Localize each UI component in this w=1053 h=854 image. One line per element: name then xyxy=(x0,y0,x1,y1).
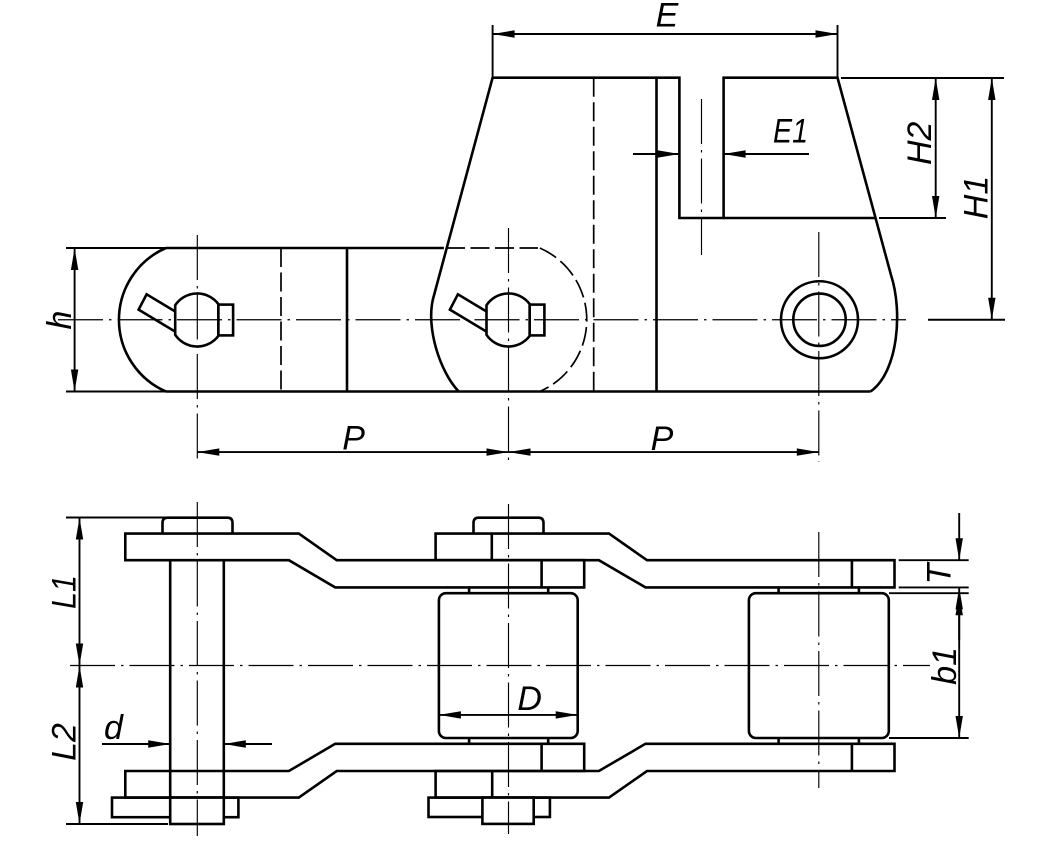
svg-text:D: D xyxy=(517,680,542,718)
svg-text:E: E xyxy=(656,0,679,35)
svg-text:P: P xyxy=(651,420,674,458)
svg-text:P: P xyxy=(342,420,365,458)
svg-text:H2: H2 xyxy=(901,121,939,165)
svg-text:d: d xyxy=(104,709,124,747)
svg-text:L2: L2 xyxy=(46,723,84,761)
svg-text:b1: b1 xyxy=(926,647,964,685)
svg-text:E1: E1 xyxy=(773,113,808,151)
svg-text:H1: H1 xyxy=(958,176,996,219)
svg-text:T: T xyxy=(921,561,959,584)
svg-text:L1: L1 xyxy=(46,575,84,609)
